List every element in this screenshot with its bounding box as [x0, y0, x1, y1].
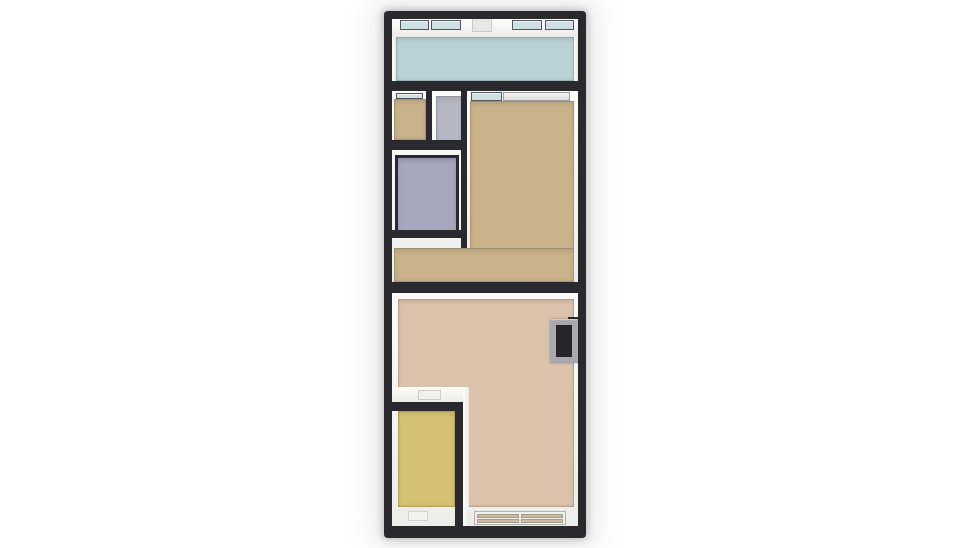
wall-vertical-center	[461, 91, 467, 248]
wall-below-small-rooms	[384, 140, 467, 150]
wall-between-small-rooms	[426, 91, 432, 142]
bottom-window-pane-3	[477, 519, 519, 523]
kitchen-wall-inner-face	[463, 387, 469, 526]
entry-door-void	[556, 325, 572, 357]
floorplan	[384, 11, 586, 538]
wall-balcony-divider	[384, 81, 586, 91]
window-top-right-pane-2	[545, 20, 574, 30]
page-background: { "app": { "type": "3d-floorplan-top-dow…	[0, 0, 972, 548]
top-wall-pier	[472, 19, 492, 32]
room-entry-nook-floor	[436, 96, 462, 142]
window-top-left-pane-2	[431, 20, 461, 30]
room-small-top-left-floor	[394, 99, 426, 140]
bottom-window-pane-4	[521, 519, 563, 523]
room-kitchen-floor	[398, 411, 455, 507]
wall-main-horizontal	[384, 282, 586, 293]
room-balcony-floor	[396, 37, 574, 81]
window-top-right-pane-1	[512, 20, 542, 30]
hallway-floor	[394, 248, 574, 282]
kitchen-right-wall	[455, 402, 463, 526]
kitchen-threshold-detail	[418, 390, 441, 400]
bottom-window-pane-2	[521, 514, 563, 518]
bottom-window-frame	[474, 511, 566, 525]
main-upper-room-window-frame	[503, 92, 570, 101]
balcony-right-wall-face	[574, 37, 578, 81]
kitchen-top-wall	[392, 402, 463, 411]
wall-below-bathroom	[384, 230, 467, 238]
main-upper-room-window-glass	[471, 92, 502, 101]
kitchen-bottom-step-detail	[408, 511, 428, 521]
bottom-window-pane-1	[477, 514, 519, 518]
window-top-left-pane-1	[400, 20, 429, 30]
room-bathroom-floor	[398, 158, 456, 230]
